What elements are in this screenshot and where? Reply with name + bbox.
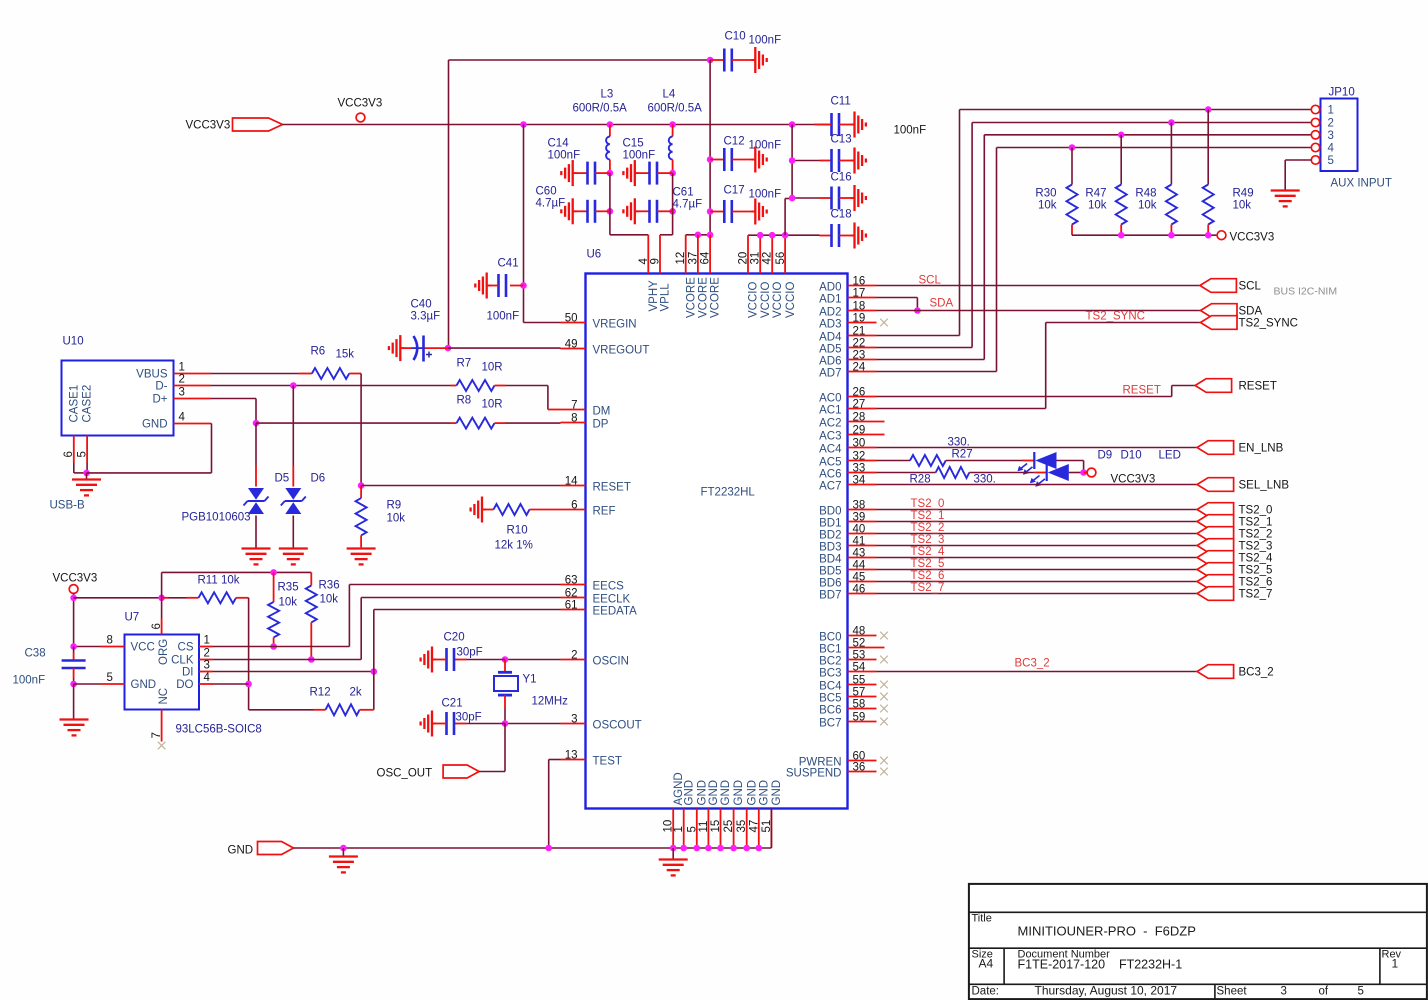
svg-text:F1TE-2017-120 FT2232H-1: F1TE-2017-120 FT2232H-1 <box>1018 958 1183 972</box>
svg-text:BD5: BD5 <box>819 566 841 578</box>
svg-text:4: 4 <box>204 672 211 684</box>
svg-text:VCORE: VCORE <box>710 277 722 318</box>
svg-text:3: 3 <box>204 660 210 672</box>
svg-text:BUS I2C-NIM: BUS I2C-NIM <box>1274 286 1338 298</box>
svg-text:5: 5 <box>1358 986 1364 998</box>
svg-text:C40: C40 <box>411 299 432 311</box>
svg-text:VREGOUT: VREGOUT <box>593 345 650 357</box>
svg-text:BC6: BC6 <box>819 705 841 717</box>
svg-text:6: 6 <box>63 451 75 457</box>
svg-text:VPHY: VPHY <box>648 280 660 312</box>
svg-text:VCC3V3: VCC3V3 <box>338 98 383 110</box>
svg-text:DM: DM <box>593 406 611 418</box>
svg-text:C14: C14 <box>548 138 570 150</box>
svg-text:RESET: RESET <box>593 482 631 494</box>
svg-text:BC3_2: BC3_2 <box>1239 667 1274 679</box>
svg-text:BD3: BD3 <box>819 542 841 554</box>
svg-text:Y1: Y1 <box>523 674 537 686</box>
svg-text:100nF: 100nF <box>894 125 927 137</box>
svg-text:63: 63 <box>565 575 578 587</box>
svg-text:C11: C11 <box>831 96 851 108</box>
svg-text:TS2_3: TS2_3 <box>1239 541 1273 553</box>
svg-text:C10: C10 <box>725 31 746 43</box>
svg-text:SDA: SDA <box>930 298 954 310</box>
svg-text:R10: R10 <box>507 525 528 537</box>
svg-text:10R: 10R <box>482 362 503 374</box>
svg-text:AUX INPUT: AUX INPUT <box>1331 178 1392 190</box>
svg-text:TS2_2: TS2_2 <box>911 522 945 534</box>
svg-text:AD1: AD1 <box>819 294 841 306</box>
svg-text:TS2_0: TS2_0 <box>911 498 945 510</box>
svg-text:L4: L4 <box>663 89 676 101</box>
svg-text:D10: D10 <box>1121 450 1142 462</box>
svg-text:VPLL: VPLL <box>660 283 672 312</box>
svg-text:AD5: AD5 <box>819 344 841 356</box>
svg-text:VCORE: VCORE <box>685 277 697 318</box>
svg-text:TS2_1: TS2_1 <box>911 510 945 522</box>
svg-text:USB-B: USB-B <box>50 500 85 512</box>
svg-text:C38: C38 <box>25 648 46 660</box>
svg-text:ORG: ORG <box>158 639 170 665</box>
svg-text:61: 61 <box>565 600 578 612</box>
svg-text:GND: GND <box>758 780 770 806</box>
svg-text:VREGIN: VREGIN <box>593 319 637 331</box>
svg-text:R12: R12 <box>310 687 331 699</box>
svg-text:VCC3V3: VCC3V3 <box>1230 232 1275 244</box>
svg-text:BD1: BD1 <box>819 518 841 530</box>
svg-text:VCCIO: VCCIO <box>760 282 772 318</box>
svg-text:100nF: 100nF <box>749 189 782 201</box>
svg-text:VCCIO: VCCIO <box>785 282 797 318</box>
svg-text:14: 14 <box>565 476 578 488</box>
svg-text:AD6: AD6 <box>819 356 841 368</box>
svg-text:AC7: AC7 <box>819 481 841 493</box>
svg-text:NC: NC <box>158 688 170 705</box>
svg-text:L3: L3 <box>601 89 614 101</box>
svg-text:TS2_4: TS2_4 <box>1239 553 1273 565</box>
svg-text:EECS: EECS <box>593 581 625 593</box>
svg-text:GND: GND <box>228 845 254 857</box>
svg-text:OSCIN: OSCIN <box>593 656 629 668</box>
svg-text:600R/0.5A: 600R/0.5A <box>573 103 628 115</box>
svg-text:VCC3V3: VCC3V3 <box>53 573 98 585</box>
svg-text:AC1: AC1 <box>819 405 841 417</box>
svg-text:5: 5 <box>1328 155 1334 167</box>
svg-text:49: 49 <box>565 339 578 351</box>
svg-text:C21: C21 <box>442 698 463 710</box>
svg-text:R11 10k: R11 10k <box>198 575 240 587</box>
svg-text:600R/0.5A: 600R/0.5A <box>648 103 703 115</box>
svg-text:4.7µF: 4.7µF <box>673 199 703 211</box>
svg-text:50: 50 <box>565 313 578 325</box>
svg-text:93LC56B-SOIC8: 93LC56B-SOIC8 <box>176 724 262 736</box>
svg-text:TS2_6: TS2_6 <box>1239 577 1273 589</box>
svg-text:U6: U6 <box>587 249 602 261</box>
svg-text:30pF: 30pF <box>457 647 483 659</box>
svg-text:FT2232HL: FT2232HL <box>701 487 756 499</box>
svg-text:TS2_SYNC: TS2_SYNC <box>1239 318 1298 330</box>
svg-text:GND: GND <box>746 780 758 806</box>
svg-text:SCL: SCL <box>919 275 942 287</box>
svg-text:LED: LED <box>1159 450 1181 462</box>
svg-text:CASE2: CASE2 <box>82 385 94 423</box>
svg-text:R35: R35 <box>278 582 299 594</box>
svg-text:of: of <box>1319 986 1329 998</box>
svg-text:RESET: RESET <box>1239 381 1277 393</box>
svg-text:3.3µF: 3.3µF <box>411 311 441 323</box>
svg-text:13: 13 <box>565 750 578 762</box>
svg-text:C15: C15 <box>623 138 644 150</box>
svg-text:SCL: SCL <box>1239 281 1262 293</box>
svg-text:10k: 10k <box>1138 200 1157 212</box>
svg-text:TS2_4: TS2_4 <box>911 546 945 558</box>
svg-text:2: 2 <box>204 648 210 660</box>
svg-text:BC5: BC5 <box>819 693 841 705</box>
svg-text:100nF: 100nF <box>487 311 520 323</box>
svg-text:SEL_LNB: SEL_LNB <box>1239 480 1290 492</box>
svg-text:C20: C20 <box>444 632 465 644</box>
svg-text:TS2_3: TS2_3 <box>911 534 945 546</box>
svg-text:AC5: AC5 <box>819 457 841 469</box>
svg-text:R27: R27 <box>952 449 973 461</box>
svg-text:BD6: BD6 <box>819 578 841 590</box>
svg-text:GND: GND <box>720 780 732 806</box>
svg-text:35: 35 <box>736 820 748 833</box>
svg-text:R8: R8 <box>457 395 472 407</box>
svg-text:C60: C60 <box>536 186 557 198</box>
svg-text:10k: 10k <box>387 513 406 525</box>
svg-text:BD4: BD4 <box>819 554 842 566</box>
svg-text:AD4: AD4 <box>819 332 842 344</box>
svg-text:AC2: AC2 <box>819 418 841 430</box>
svg-text:AC0: AC0 <box>819 393 841 405</box>
svg-text:10k: 10k <box>320 594 339 606</box>
svg-text:DP: DP <box>593 419 609 431</box>
svg-text:AD3: AD3 <box>819 319 841 331</box>
svg-text:2: 2 <box>179 374 185 386</box>
svg-text:C61: C61 <box>673 187 694 199</box>
svg-text:SUSPEND: SUSPEND <box>786 768 842 780</box>
svg-text:BD0: BD0 <box>819 506 841 518</box>
svg-text:BC0: BC0 <box>819 632 841 644</box>
svg-text:BC3_2: BC3_2 <box>1015 658 1050 670</box>
svg-text:8: 8 <box>571 413 577 425</box>
svg-text:BC3: BC3 <box>819 668 841 680</box>
svg-text:2: 2 <box>1328 118 1334 130</box>
svg-text:100nF: 100nF <box>623 150 656 162</box>
svg-text:10k: 10k <box>1038 200 1057 212</box>
svg-text:PGB1010603: PGB1010603 <box>182 512 251 524</box>
svg-text:8: 8 <box>107 635 113 647</box>
svg-text:D6: D6 <box>311 473 326 485</box>
svg-text:VCC: VCC <box>131 642 155 654</box>
svg-text:TS2_7: TS2_7 <box>911 582 945 594</box>
svg-text:CS: CS <box>178 642 194 654</box>
svg-text:BC2: BC2 <box>819 656 841 668</box>
svg-text:12k 1%: 12k 1% <box>495 540 533 552</box>
svg-text:R36: R36 <box>319 580 340 592</box>
svg-text:BD2: BD2 <box>819 530 841 542</box>
svg-text:4: 4 <box>179 412 186 424</box>
svg-text:R49: R49 <box>1233 188 1254 200</box>
svg-text:100nF: 100nF <box>13 675 46 687</box>
svg-text:MINITIOUNER-PRO - F6DZP: MINITIOUNER-PRO - F6DZP <box>1018 924 1196 939</box>
svg-text:TS2_2: TS2_2 <box>1239 529 1273 541</box>
svg-text:BC7: BC7 <box>819 718 841 730</box>
svg-text:R48: R48 <box>1135 188 1156 200</box>
svg-text:TS2_1: TS2_1 <box>1239 517 1273 529</box>
svg-text:TS2_5: TS2_5 <box>911 558 945 570</box>
svg-text:C13: C13 <box>831 134 852 146</box>
svg-text:D5: D5 <box>275 473 290 485</box>
svg-text:U7: U7 <box>125 612 140 624</box>
svg-text:10R: 10R <box>482 399 503 411</box>
svg-text:TS2_6: TS2_6 <box>911 570 945 582</box>
svg-text:REF: REF <box>593 506 616 518</box>
svg-text:TS2_0: TS2_0 <box>1239 505 1273 517</box>
svg-text:C12: C12 <box>724 136 745 148</box>
svg-text:AD2: AD2 <box>819 307 841 319</box>
svg-text:DO: DO <box>176 679 193 691</box>
svg-text:R30: R30 <box>1035 188 1056 200</box>
svg-text:C41: C41 <box>498 258 519 270</box>
svg-text:4: 4 <box>1328 143 1335 155</box>
svg-text:GND: GND <box>131 679 157 691</box>
svg-text:RESET: RESET <box>1123 385 1161 397</box>
svg-text:A4: A4 <box>979 957 994 971</box>
svg-text:EECLK: EECLK <box>593 594 631 606</box>
svg-text:Sheet: Sheet <box>1217 986 1248 998</box>
svg-text:30pF: 30pF <box>456 712 482 724</box>
svg-text:Title: Title <box>972 913 992 925</box>
svg-text:JP10: JP10 <box>1329 87 1355 99</box>
svg-text:1: 1 <box>673 826 685 832</box>
svg-text:4.7µF: 4.7µF <box>536 198 566 210</box>
svg-text:GND: GND <box>696 780 708 806</box>
svg-text:TS2_7: TS2_7 <box>1239 589 1273 601</box>
svg-text:R47: R47 <box>1085 188 1106 200</box>
svg-text:D9: D9 <box>1098 450 1113 462</box>
svg-text:SDA: SDA <box>1239 306 1263 318</box>
svg-text:D-: D- <box>155 381 167 393</box>
svg-text:6: 6 <box>571 500 577 512</box>
svg-text:BC1: BC1 <box>819 644 841 656</box>
svg-text:62: 62 <box>565 588 578 600</box>
svg-text:C17: C17 <box>724 185 745 197</box>
svg-text:330.: 330. <box>948 437 970 449</box>
svg-text:11: 11 <box>698 821 710 833</box>
svg-text:CLK: CLK <box>171 655 194 667</box>
svg-text:12MHz: 12MHz <box>532 696 569 708</box>
svg-text:EEDATA: EEDATA <box>593 606 638 618</box>
svg-text:TS2_SYNC: TS2_SYNC <box>1086 311 1145 323</box>
svg-text:1: 1 <box>204 635 210 647</box>
svg-text:5: 5 <box>77 451 89 457</box>
svg-text:100nF: 100nF <box>548 150 581 162</box>
svg-text:10k: 10k <box>1233 200 1252 212</box>
svg-text:2: 2 <box>571 650 577 662</box>
svg-text:6: 6 <box>151 623 163 629</box>
svg-text:EN_LNB: EN_LNB <box>1239 443 1284 455</box>
svg-text:VCORE: VCORE <box>698 277 710 318</box>
svg-text:10k: 10k <box>279 597 298 609</box>
svg-text:3: 3 <box>1328 130 1334 142</box>
svg-text:1: 1 <box>1328 105 1334 117</box>
svg-text:VBUS: VBUS <box>136 369 168 381</box>
svg-text:U10: U10 <box>63 336 84 348</box>
svg-text:15: 15 <box>710 820 722 833</box>
svg-text:3: 3 <box>179 387 185 399</box>
svg-text:TS2_5: TS2_5 <box>1239 565 1273 577</box>
svg-text:R6: R6 <box>311 346 326 358</box>
svg-text:VCCIO: VCCIO <box>748 282 760 318</box>
svg-text:100nF: 100nF <box>749 140 782 152</box>
svg-text:GND: GND <box>733 780 745 806</box>
svg-text:15k: 15k <box>336 349 355 361</box>
svg-text:10k: 10k <box>1088 200 1107 212</box>
svg-text:BC4: BC4 <box>819 681 842 693</box>
svg-text:AC4: AC4 <box>819 444 842 456</box>
svg-text:AC3: AC3 <box>819 431 841 443</box>
svg-text:3: 3 <box>1281 986 1287 998</box>
svg-text:GND: GND <box>142 419 168 431</box>
svg-text:GND: GND <box>683 780 695 806</box>
svg-text:GND: GND <box>771 780 783 806</box>
svg-text:5: 5 <box>107 672 113 684</box>
svg-text:TEST: TEST <box>593 756 622 768</box>
svg-text:BD7: BD7 <box>819 590 841 602</box>
svg-text:DI: DI <box>182 667 194 679</box>
svg-text:VCC3V3: VCC3V3 <box>186 120 231 132</box>
svg-text:VCCIO: VCCIO <box>772 282 784 318</box>
svg-text:R9: R9 <box>387 500 402 512</box>
svg-text:CASE1: CASE1 <box>69 385 81 423</box>
svg-text:47: 47 <box>748 820 760 833</box>
svg-text:100nF: 100nF <box>749 35 782 47</box>
svg-text:GND: GND <box>708 780 720 806</box>
svg-text:25: 25 <box>723 820 735 833</box>
svg-text:Thursday, August 10, 2017: Thursday, August 10, 2017 <box>1035 984 1178 998</box>
svg-text:C16: C16 <box>831 172 852 184</box>
svg-text:7: 7 <box>571 400 577 412</box>
svg-text:OSC_OUT: OSC_OUT <box>377 768 433 780</box>
svg-text:Date:: Date: <box>972 986 1000 998</box>
svg-text:1: 1 <box>1392 957 1399 971</box>
svg-text:OSCOUT: OSCOUT <box>593 720 642 732</box>
svg-text:AD7: AD7 <box>819 368 841 380</box>
svg-text:D+: D+ <box>152 394 167 406</box>
svg-text:AC6: AC6 <box>819 469 841 481</box>
svg-text:2k: 2k <box>350 687 362 699</box>
svg-text:C18: C18 <box>831 209 852 221</box>
svg-text:AD0: AD0 <box>819 282 841 294</box>
svg-text:1: 1 <box>179 362 185 374</box>
svg-text:R7: R7 <box>457 358 472 370</box>
svg-text:3: 3 <box>571 714 577 726</box>
svg-text:5: 5 <box>686 826 698 832</box>
